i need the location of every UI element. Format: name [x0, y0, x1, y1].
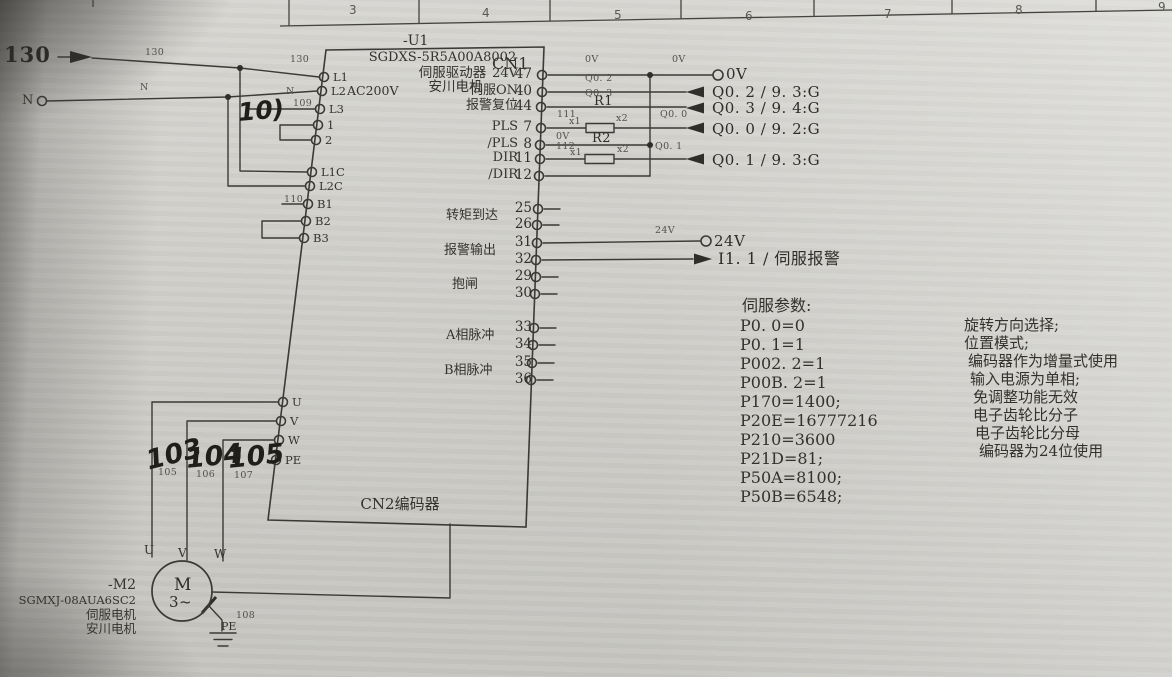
cn1-group-torque-reached: 转矩到达: [446, 209, 498, 223]
wire-label-q00: Q0. 0: [660, 110, 687, 120]
motor-ref: -M2: [10, 578, 136, 593]
plc-output-q00: Q0. 0 / 9. 2:G: [712, 122, 820, 138]
supply-rating-label: AC200V: [347, 84, 398, 97]
feed-line-label: 130: [4, 44, 51, 66]
cn1-group-b-phase-pulse: B相脉冲: [444, 364, 493, 378]
cn1-pin-33: 33: [500, 320, 532, 334]
wire-label-108: 108: [236, 611, 255, 621]
wire-label-q01: Q0. 1: [655, 142, 682, 152]
wire-label-130-b: 130: [290, 55, 309, 65]
servo-param-item: P50A=8100;: [740, 470, 842, 487]
wires: [47, 57, 713, 646]
wire-label-n-b: N: [286, 87, 295, 97]
cn1-group-alarm-output: 报警输出: [444, 244, 496, 258]
ruler-cell-3: 3: [349, 4, 357, 17]
servo-param-item: P002. 2=1: [740, 356, 825, 373]
motor-symbol-phases: 3~: [169, 595, 192, 611]
pin-b2: B2: [315, 215, 331, 227]
motor-model: SGMXJ-08AUA6SC2: [10, 594, 136, 606]
pin-b3: B3: [313, 232, 329, 244]
cn1-pin-25: 25: [500, 201, 532, 215]
cn1-pin-30: 30: [500, 286, 532, 300]
servo-param-item: P50B=6548;: [740, 489, 842, 506]
servo-param-item: P0. 1=1: [740, 337, 805, 354]
cn1-pin-31: 31: [500, 235, 532, 249]
cn1-pin-26: 26: [500, 217, 532, 231]
wire-label-0v-a: 0V: [585, 55, 599, 65]
wire-label-0v-b: 0V: [672, 55, 686, 65]
pin-1: 1: [327, 119, 334, 131]
cn1-pin-40: 40: [500, 84, 532, 98]
resistor-r1-label: R1: [594, 95, 613, 109]
cn1-pin-44: 44: [500, 99, 532, 113]
pin-l2: L2: [331, 85, 346, 97]
wire-label-106: 106: [196, 470, 215, 480]
wire-label-109: 109: [293, 99, 312, 109]
resistor-r2-x1: x1: [570, 148, 582, 158]
wire-label-24v: 24V: [655, 226, 675, 236]
resistor-r2-label: R2: [592, 132, 611, 146]
ruler-cell-5: 5: [614, 9, 622, 22]
cn1-pin-47: 47: [500, 67, 532, 81]
ruler-lines: [93, 0, 1172, 26]
pin-2: 2: [325, 134, 332, 146]
motor-terminal-v: V: [178, 547, 187, 560]
note-line: 编码器作为增量式使用: [968, 354, 1118, 370]
servo-params-title: 伺服参数:: [742, 298, 811, 315]
plc-output-q03: Q0. 3 / 9. 4:G: [712, 101, 820, 117]
cn1-group-a-phase-pulse: A相脉冲: [446, 329, 494, 343]
wire-label-q02: Q0. 2: [585, 74, 612, 84]
servo-param-item: P21D=81;: [740, 451, 823, 468]
ruler-cell-8: 8: [1015, 4, 1023, 17]
ruler-cell-7: 7: [884, 8, 892, 21]
servo-param-item: P170=1400;: [740, 394, 841, 411]
pin-l1: L1: [333, 71, 348, 83]
cn1-pin-29: 29: [500, 269, 532, 283]
note-line: 输入电源为单相;: [970, 372, 1080, 388]
cn1-pin-11: 11: [500, 151, 532, 165]
note-line: 旋转方向选择;: [964, 318, 1059, 334]
pin-pe: PE: [285, 454, 301, 466]
motor-terminal-w: W: [214, 548, 226, 561]
motor-type: 伺服电机: [10, 608, 136, 621]
plc-input-alarm: I1. 1 / 伺服报警: [718, 251, 840, 268]
servo-param-item: P20E=16777216: [740, 413, 878, 430]
resistor-r1-x2: x2: [616, 114, 628, 124]
ruler-cell-4: 4: [482, 7, 490, 20]
note-line: 免调整功能无效: [973, 390, 1078, 406]
note-line: 编码器为24位使用: [979, 444, 1103, 460]
note-line: 位置模式;: [964, 336, 1029, 352]
pin-v: V: [290, 415, 298, 427]
cn1-pin-32: 32: [500, 252, 532, 266]
wire-label-107: 107: [234, 471, 253, 481]
motor-brand: 安川电机: [10, 622, 136, 635]
terminal-0v: 0V: [726, 67, 747, 83]
servo-param-item: P0. 0=0: [740, 318, 805, 335]
servo-param-item: P210=3600: [740, 432, 835, 449]
pin-u: U: [292, 396, 302, 408]
note-line: 电子齿轮比分子: [973, 408, 1078, 424]
pin-l2c: L2C: [319, 180, 343, 192]
cn1-pin-36: 36: [500, 372, 532, 386]
wire-label-105: 105: [158, 468, 177, 478]
pin-l1c: L1C: [321, 166, 345, 178]
cn1-pin-12: 12: [500, 168, 532, 182]
motor-terminal-u: U: [144, 544, 154, 557]
ruler-cell-9: 9: [1158, 1, 1166, 14]
wire-label-110: 110: [284, 195, 303, 205]
resistor-r1-x1: x1: [569, 117, 581, 127]
handwritten-109-correction: 10): [237, 96, 285, 126]
pin-w: W: [288, 434, 300, 446]
resistor-r2-x2: x2: [617, 145, 629, 155]
plc-output-q01: Q0. 1 / 9. 3:G: [712, 153, 820, 169]
cn2-encoder-label: CN2编码器: [330, 497, 470, 513]
terminal-24v: 24V: [714, 234, 745, 250]
wire-label-n-a: N: [140, 83, 149, 93]
neutral-label: N: [22, 94, 33, 108]
pin-b1: B1: [317, 198, 333, 210]
cn1-group-brake: 抱闸: [452, 278, 478, 292]
wire-label-130-a: 130: [145, 48, 164, 58]
drive-ref: -U1: [403, 34, 428, 49]
cn1-pin-35: 35: [500, 355, 532, 369]
motor-earth-pe-label: PE: [221, 621, 236, 633]
note-line: 电子齿轮比分母: [975, 426, 1080, 442]
scanned-schematic-photo: 3 4 5 6 7 8 9 130 N 130 130 N N 109 10) …: [0, 0, 1172, 677]
ruler-cell-6: 6: [745, 10, 753, 23]
cn1-pin-7: 7: [500, 120, 532, 134]
servo-param-item: P00B. 2=1: [740, 375, 827, 392]
pin-circles: [38, 70, 724, 465]
cn1-pin-34: 34: [500, 337, 532, 351]
pin-l3: L3: [329, 103, 344, 115]
